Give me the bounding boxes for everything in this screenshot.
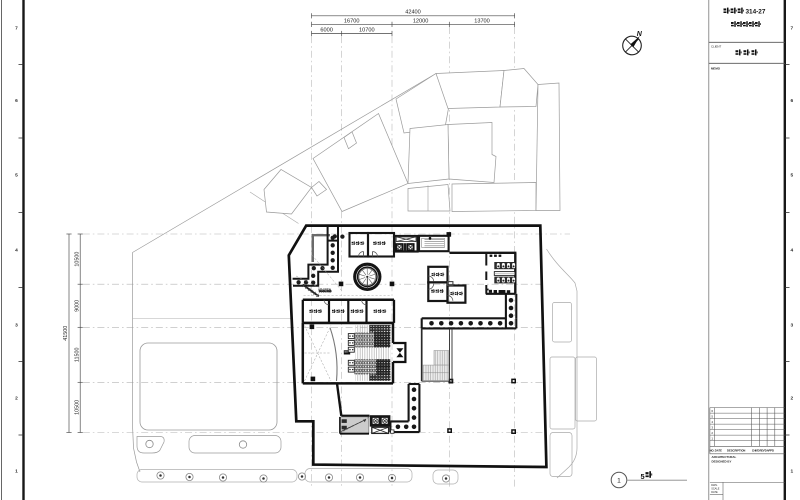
svg-text:12000: 12000 xyxy=(413,18,429,24)
svg-text:11500: 11500 xyxy=(74,348,80,363)
svg-text:41500: 41500 xyxy=(63,326,69,341)
svg-text:314-27: 314-27 xyxy=(746,9,766,16)
svg-text:CHK'D REV'D APP'D: CHK'D REV'D APP'D xyxy=(752,448,774,452)
svg-text:DATE: DATE xyxy=(715,448,722,452)
svg-text:DESIGNED BY: DESIGNED BY xyxy=(712,459,732,463)
svg-text:7: 7 xyxy=(790,26,793,32)
svg-text:MEMO: MEMO xyxy=(711,67,721,71)
svg-text:10500: 10500 xyxy=(74,252,80,267)
svg-text:42400: 42400 xyxy=(405,10,421,16)
svg-text:1: 1 xyxy=(15,469,18,475)
svg-text:6: 6 xyxy=(15,98,18,104)
svg-text:7: 7 xyxy=(15,26,18,32)
svg-text:3: 3 xyxy=(15,323,18,329)
svg-text:DATE: DATE xyxy=(711,491,718,494)
svg-text:1: 1 xyxy=(790,469,793,475)
svg-text:SCALE: SCALE xyxy=(711,488,720,491)
svg-text:10700: 10700 xyxy=(359,27,375,33)
svg-text:3: 3 xyxy=(790,323,793,329)
svg-text:6000: 6000 xyxy=(320,27,332,33)
svg-text:5: 5 xyxy=(15,173,18,179)
svg-text:9000: 9000 xyxy=(74,300,80,312)
svg-text:13700: 13700 xyxy=(474,18,490,24)
svg-text:2: 2 xyxy=(790,396,793,402)
svg-text:16700: 16700 xyxy=(344,18,360,24)
svg-text:DESCRIPTION: DESCRIPTION xyxy=(727,448,745,452)
svg-text:1: 1 xyxy=(617,478,621,485)
svg-text:CLIENT: CLIENT xyxy=(711,45,722,49)
svg-text:4: 4 xyxy=(15,248,18,254)
svg-text:DWG: DWG xyxy=(711,484,717,487)
svg-text:4: 4 xyxy=(790,248,793,254)
svg-text:5: 5 xyxy=(641,472,645,481)
svg-text:UP-OPEN: UP-OPEN xyxy=(318,288,331,292)
svg-text:ARCHITECTURAL: ARCHITECTURAL xyxy=(712,455,737,459)
svg-text:10500: 10500 xyxy=(74,400,80,415)
svg-text:2: 2 xyxy=(15,396,18,402)
svg-text:5: 5 xyxy=(790,173,793,179)
svg-text:6: 6 xyxy=(790,98,793,104)
